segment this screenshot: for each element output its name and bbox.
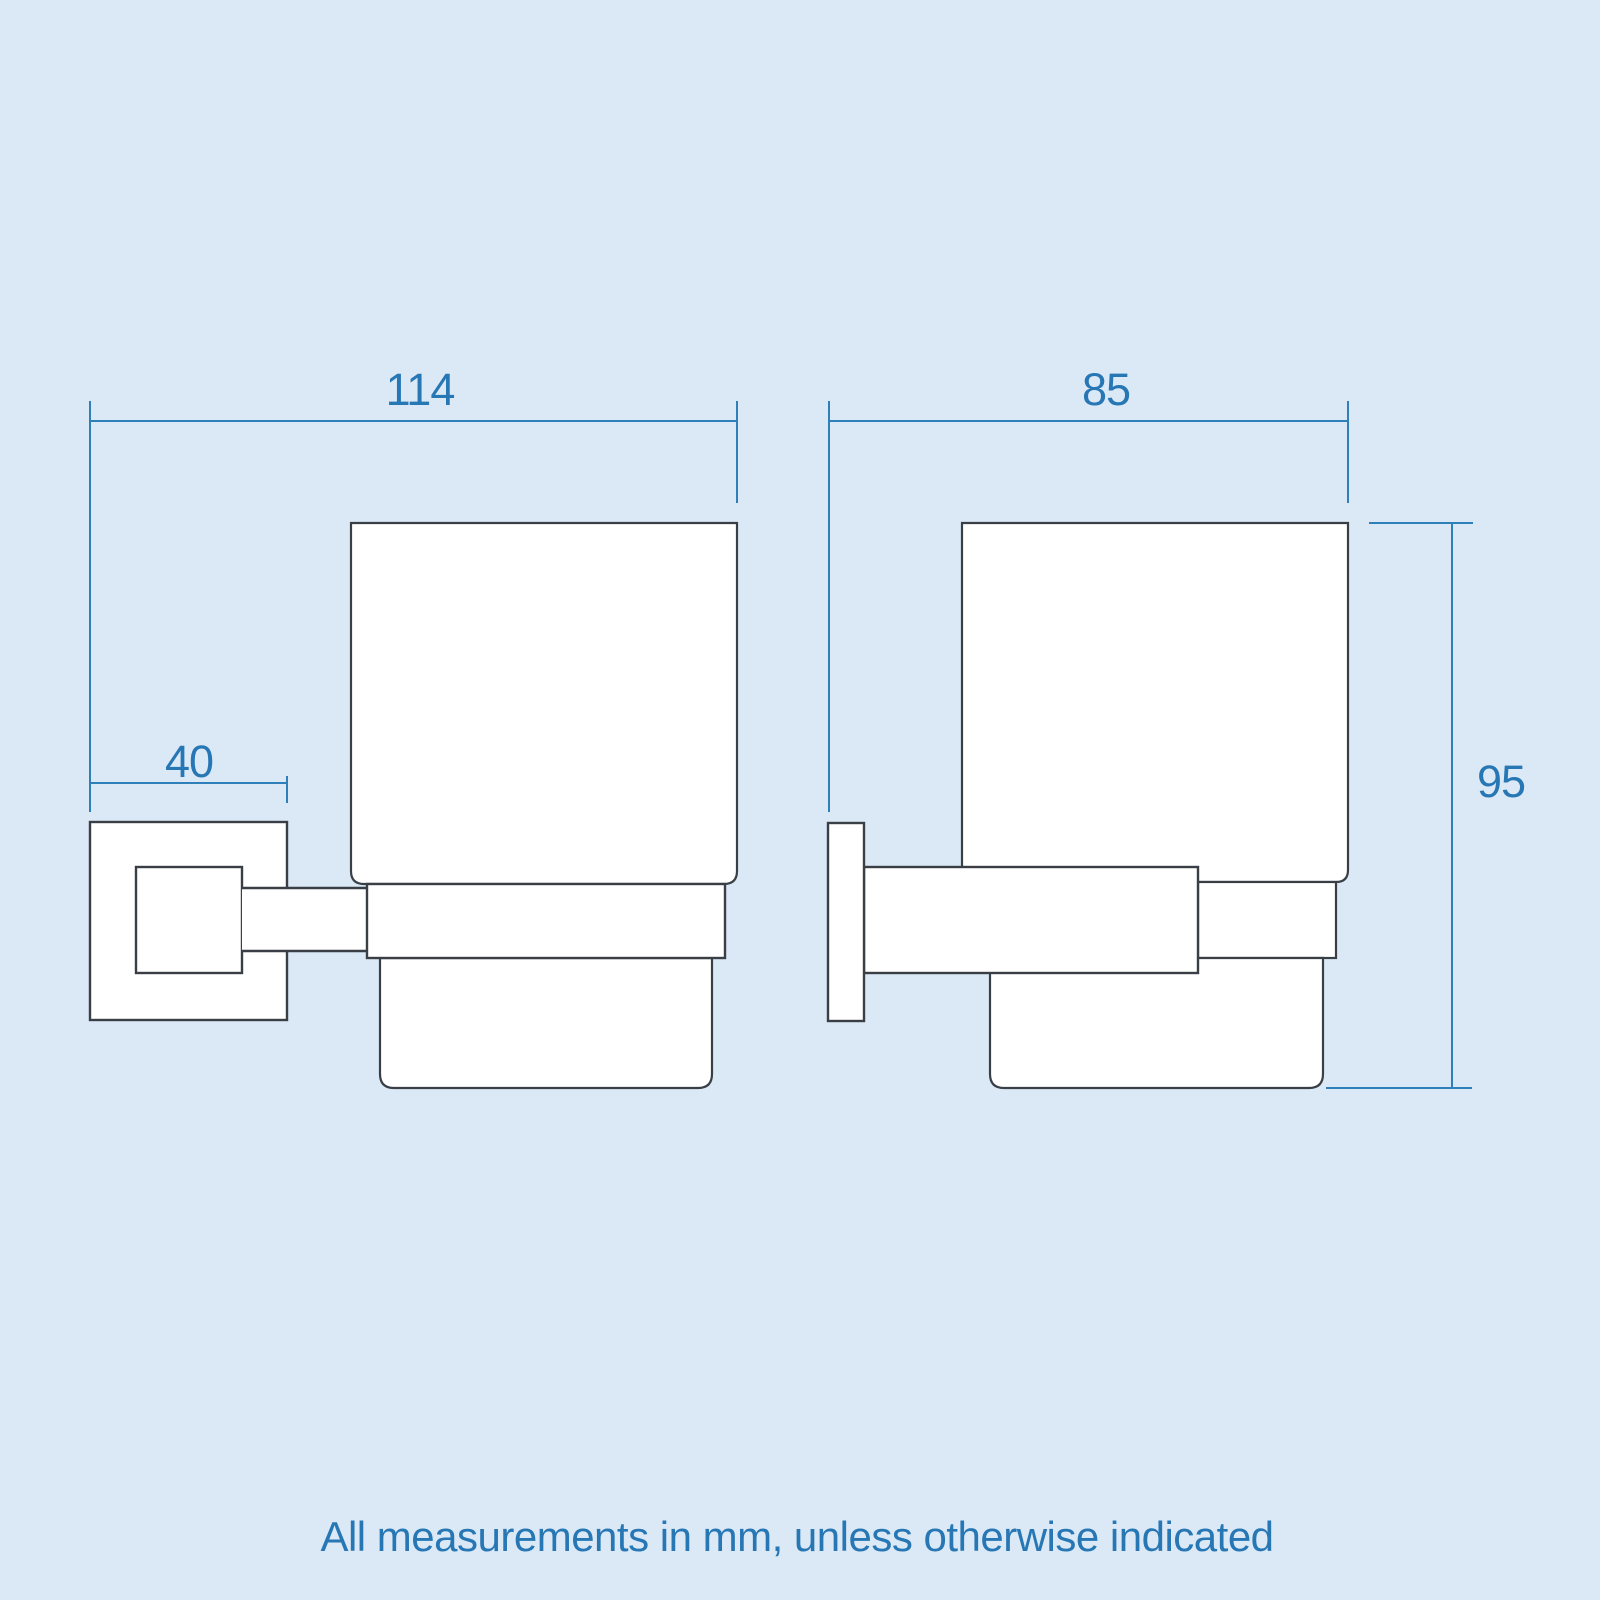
front-view [90, 523, 737, 1088]
front-holder-band [367, 884, 725, 958]
front-tumbler-upper [351, 523, 737, 884]
side-holder-band [864, 867, 1198, 973]
dim-95-label: 95 [1477, 756, 1525, 807]
front-wall-plate-inner [136, 867, 242, 973]
dimension-side-height: 95 [1326, 523, 1525, 1088]
side-view [828, 523, 1348, 1088]
side-wall-plate [828, 823, 864, 1021]
dim-114-label: 114 [386, 364, 455, 415]
side-tumbler-upper [962, 523, 1348, 882]
tumbler-holder-dimension-diagram: 114 40 85 95 All measurements in mm, unl… [0, 0, 1600, 1600]
dim-40-label: 40 [165, 736, 213, 787]
dimension-diagram-page: 114 40 85 95 All measurements in mm, unl… [0, 0, 1600, 1600]
side-tumbler-waist [1198, 882, 1336, 958]
dim-85-label: 85 [1082, 364, 1130, 415]
dimension-front-plate-width: 40 [90, 736, 287, 803]
front-mounting-arm [242, 888, 370, 951]
side-tumbler-lower [990, 958, 1323, 1088]
footer-note: All measurements in mm, unless otherwise… [320, 1513, 1273, 1560]
front-tumbler-lower [380, 958, 712, 1088]
